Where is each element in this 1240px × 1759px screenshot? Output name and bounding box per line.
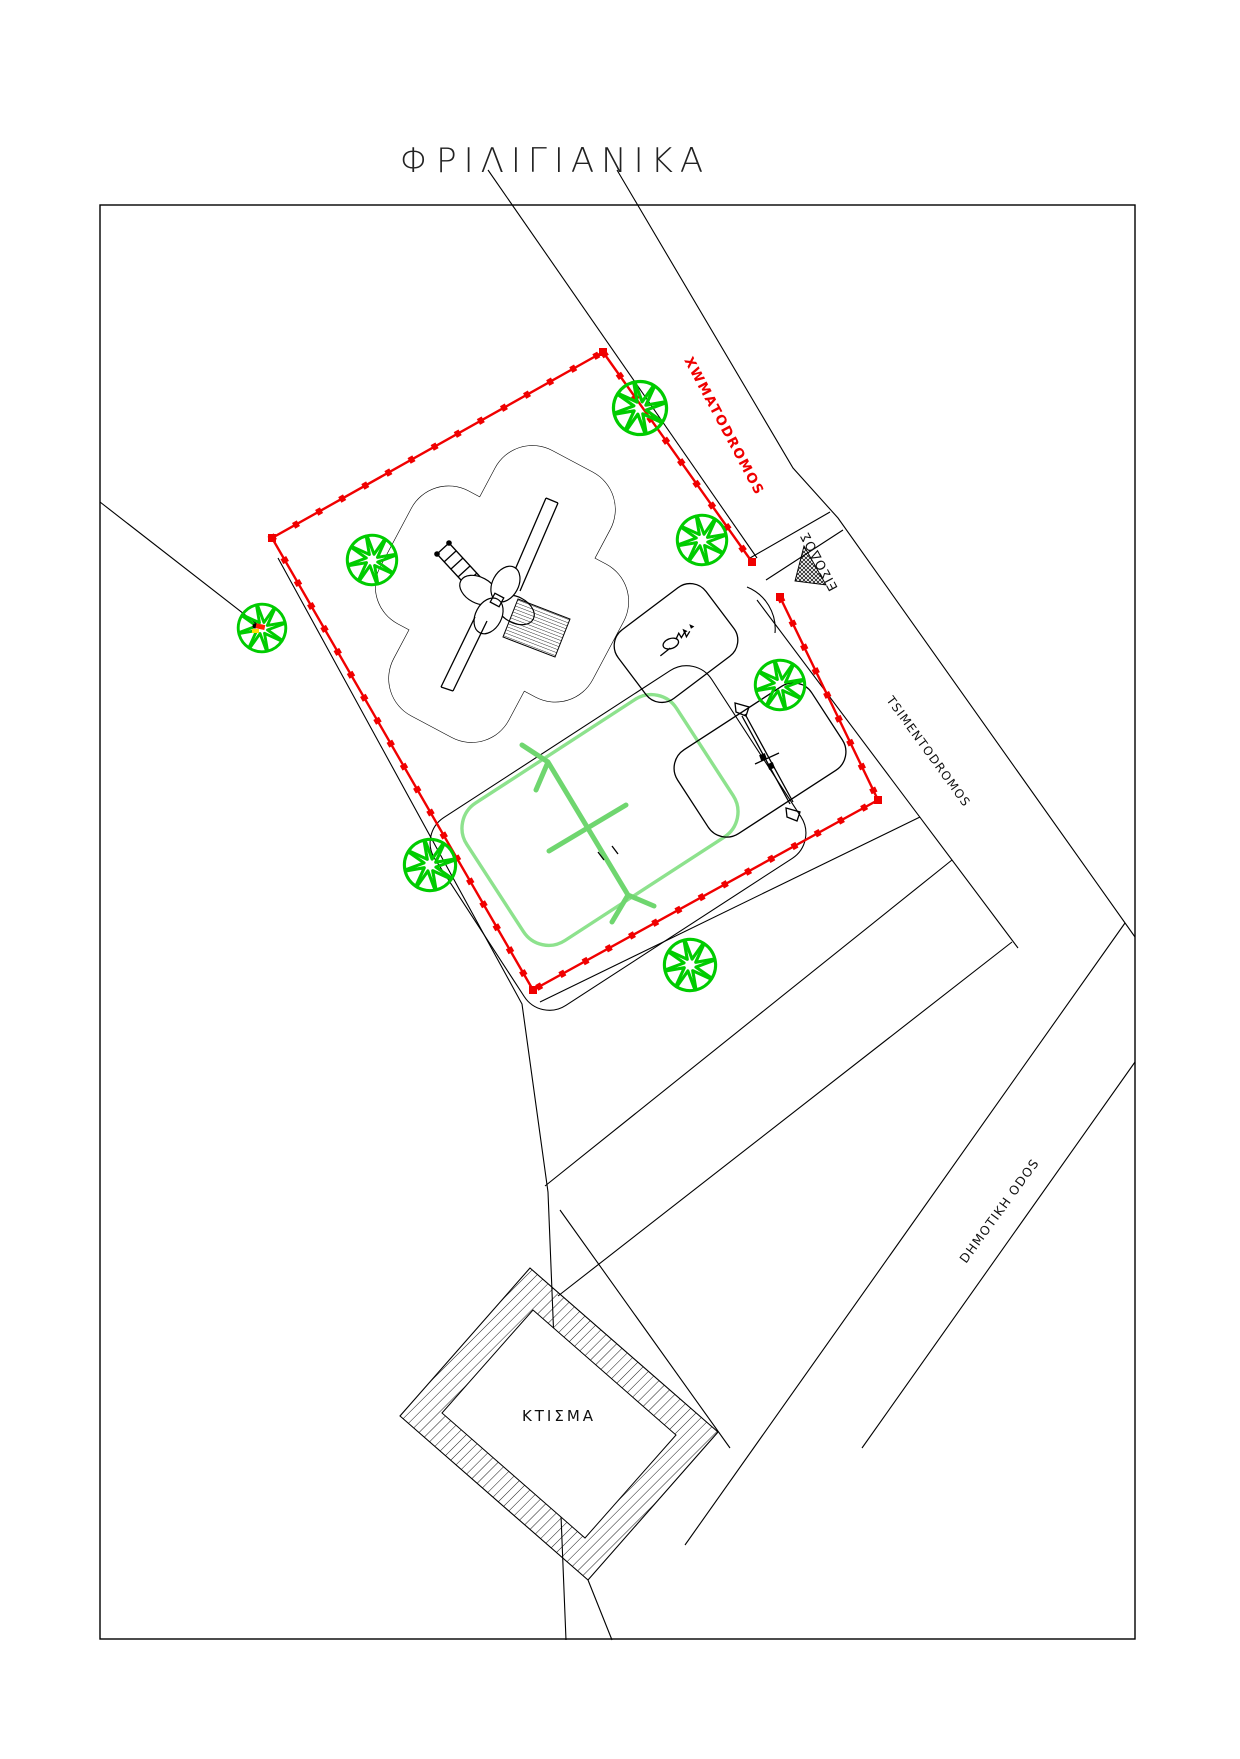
survey-marker: [252, 623, 265, 633]
cement-road-west-edge: [757, 600, 1018, 948]
building-label: ΚΤΙΣΜΑ: [522, 1407, 596, 1425]
boundary-corner: [748, 558, 756, 566]
site-plan-canvas: ΦΡΙΛΙΓΙΑΝΙΚΑ ΚΤΙΣΜΑ: [0, 0, 1240, 1754]
west-fence-line: [100, 502, 262, 628]
site-plan-page: ΦΡΙΛΙΓΙΑΝΙΚΑ ΚΤΙΣΜΑ: [0, 0, 1240, 1754]
building-plot-south-line: [588, 1580, 612, 1640]
municipal-road-se-edge: [862, 1062, 1135, 1448]
drawing-title: ΦΡΙΛΙΓΙΑΝΙΚΑ: [400, 141, 710, 181]
boundary-corner: [874, 796, 882, 804]
boundary-corner: [599, 348, 607, 356]
branch-road-nw-edge: [545, 860, 952, 1186]
spring-rider-icon: [654, 623, 700, 656]
swing-set: [522, 745, 654, 922]
building: ΚΤΙΣΜΑ: [400, 1268, 718, 1580]
boundary-corner: [529, 986, 537, 994]
boundary-corner: [268, 534, 276, 542]
municipal-road-nw-edge: [685, 923, 1125, 1545]
branch-road-se-edge: [558, 942, 1012, 1296]
entrance-gate-arc: [747, 587, 775, 633]
tree-icon: [754, 659, 806, 711]
cement-road-label: TSIMENTODROMOS: [883, 693, 973, 810]
boundary-corner: [776, 593, 784, 601]
tree-icon: [663, 938, 717, 992]
tree-icon: [676, 514, 728, 566]
dirt-road-label: XWMATODROMOS: [680, 354, 767, 498]
